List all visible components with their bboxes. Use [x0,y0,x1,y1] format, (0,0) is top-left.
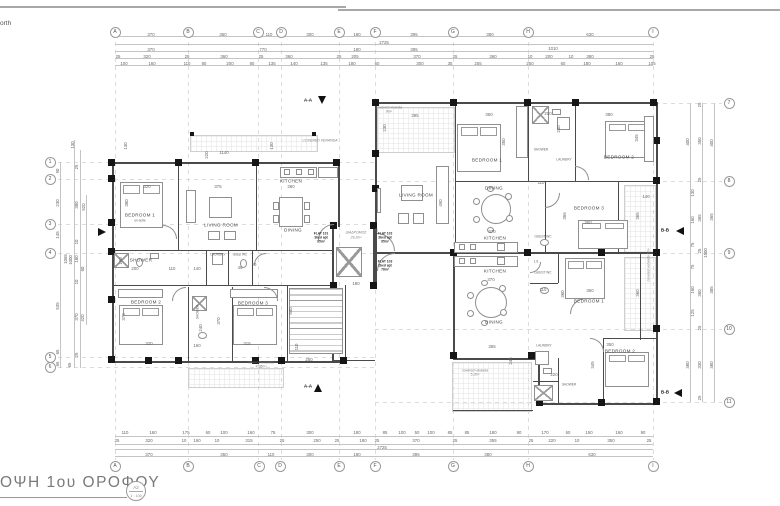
round-furniture [473,216,480,223]
dimension-label: 250 [313,439,320,443]
column [653,137,660,144]
wall [112,250,334,251]
dimension-label: 1010 [548,47,558,51]
grid-bubble: D [275,461,286,472]
wall [453,358,535,360]
dimension-label: 25 [453,439,458,443]
round-furniture [540,239,549,246]
wall [528,102,529,181]
furniture [497,257,505,265]
dimension-label: 250 [305,358,312,362]
dimension-label: 250 [526,62,533,66]
dimension-label: 350 [607,439,614,443]
dimension-label: 200 [544,112,551,116]
grid-bubble: G [448,461,459,472]
dimension-label: 355 [489,439,496,443]
dimension-label: 160 [149,431,156,435]
dimension-label: 360 [698,289,702,296]
furniture [470,244,476,250]
room-label: KITCHEN [280,180,302,185]
bed [605,352,649,387]
dimension-label: 630 [586,33,593,37]
dimension-label: 25 [698,178,702,183]
dimension-label: 140 [642,195,649,199]
sheet-size-label: A2 [127,485,145,490]
dimension-label: 85 [448,431,453,435]
dimension-label: 350 [698,137,702,144]
furniture [318,167,338,178]
dimension-label: 25 [75,165,79,170]
veranda-label: ΔΙΑΔΡΟΜΟΣ [346,231,367,235]
grid-bubble: I [648,27,659,38]
dimension-label: 355 [488,345,495,349]
veranda-label: 4.95m² [256,365,267,369]
dimension-label: 25 [650,55,655,59]
dimension-label: 20 [252,263,257,267]
dimension-label: LAUNDRY [210,253,225,256]
grid-line-vertical [188,42,189,460]
dimension-label: 25 [185,55,190,59]
door-swing [545,193,560,208]
column [450,352,457,359]
column [598,249,605,256]
dimension-label: 400 [710,139,714,146]
furniture [279,197,303,227]
dimension-label: 150 [585,431,592,435]
dimension-label: 370 [122,313,126,320]
column [370,282,377,289]
furniture [304,202,310,210]
dimension-label: 200 [226,62,233,66]
section-arrow [676,227,684,235]
dimension-label: 160 [691,286,695,293]
dimension-label: 300 [306,431,313,435]
dimension-label: SHOWER [534,148,548,151]
furniture [304,215,310,223]
dimension-label: 420 [81,314,85,321]
dimension-label: 25 [453,55,458,59]
dimension-label: 2725 [379,41,389,45]
room-label: SHOWER [130,259,152,264]
dimension-label: 320 [145,439,152,443]
dimension-label: 220 [205,151,209,158]
dimension-label: 360 [287,185,294,189]
column [278,357,285,364]
grid-bubble: 8 [724,176,735,187]
dimension-label: 240 [557,125,561,132]
dimension-label: 345 [591,361,595,368]
dimension-label: 25 [375,439,380,443]
dimension-label: 395 [412,453,419,457]
round-furniture [467,310,474,317]
veranda-label: covered veranda 5m² [647,248,651,281]
dimension-label: 140 [193,267,200,271]
dimension-label: 35 [448,62,453,66]
furniture [186,190,196,223]
dimension-label: 130 [691,189,695,196]
section-label: B-B [661,391,669,396]
column [528,352,535,359]
grid-bubble: 1 [45,157,56,168]
wall [455,102,456,253]
dimension-label: 10 [182,439,187,443]
dimension-label: 25 [698,396,702,401]
column [572,99,579,106]
dimension-label: 160 [193,439,200,443]
dimension-label: 110 [295,344,299,351]
grid-bubble: 9 [724,248,735,259]
door-swing [172,287,186,301]
furniture [552,109,561,115]
dimension-label: 180 [353,48,360,52]
dimension-label: 110 [122,431,129,435]
dimension-label: 370 [487,278,494,282]
section-arrow [674,389,682,397]
dimension-label: 60 [206,431,211,435]
wall [533,381,559,382]
room-label: DINING [284,229,302,234]
dimension-label: 220 [548,439,555,443]
dimension-label: 25 [280,439,285,443]
furniture [377,188,381,213]
column [598,399,605,406]
grid-line-vertical [281,42,282,460]
dimension-label: 60 [561,62,566,66]
dimension-label: 100 [427,431,434,435]
column [108,175,115,182]
dimension-label: 230 [383,124,387,131]
veranda-label: 5.2m² [471,373,480,377]
round-furniture [473,198,480,205]
dimension-label: 25 [529,439,534,443]
wall [252,250,253,285]
bed [119,305,163,345]
dimension-label: 65 [56,350,60,355]
furniture [535,351,549,365]
wall [603,338,656,339]
dimension-label: 25 [647,439,652,443]
dimension-label: 160 [615,431,622,435]
column [252,159,259,166]
dimension-label: 380 [486,33,493,37]
dimension-label: 110 [268,453,275,457]
dimension-label: 360 [485,113,492,117]
dimension-label: 370 [217,317,221,324]
grid-line-vertical [115,42,116,460]
dimension-label: 90 [517,431,522,435]
door-swing [163,225,177,239]
section-arrow [314,384,322,392]
grid-bubble: C [253,27,264,38]
title-underline [0,497,127,498]
dimension-label: 365 [710,213,714,220]
bed [565,258,605,299]
dimension-label: 490 [439,199,443,206]
dimension-label: 320 [143,185,150,189]
room-label: KITCHEN [484,270,506,275]
dimension-label: 380 [605,113,612,117]
dimension-label: 370 [413,55,420,59]
grid-bubble: 3 [45,219,56,230]
furniture [209,197,232,218]
dimension-label: 60 [375,62,380,66]
section-arrow [98,228,106,236]
round-furniture [500,309,507,316]
dimension-label: 180 [489,431,496,435]
dimension-label: 60 [81,267,85,272]
wall [228,250,229,285]
dimension-line [115,456,653,457]
furniture [224,231,236,240]
dimension-label: 25 [698,249,702,254]
dimension-label: 580 [289,307,293,314]
dimension-label: 205 [351,55,358,59]
dimension-label: 10 [569,55,574,59]
veranda-label: 29.2m² [351,236,362,240]
grid-bubble: E [334,461,345,472]
column [108,356,115,363]
column [524,249,531,256]
room-label: LIVING ROOM [204,224,238,229]
column [333,159,340,166]
grid-bubble: I [648,461,659,472]
dimension-label: 180 [583,62,590,66]
veranda-label: COVERED VERANDA [302,139,337,143]
furniture [497,243,505,251]
dimension-label: 360 [220,55,227,59]
dimension-label: 245 [509,357,513,364]
section-label: A-A [304,99,312,104]
grid-bubble: B [183,461,194,472]
bed [233,305,277,345]
dimension-label: 25 [698,326,702,331]
room-label: BEDROOM 3 [574,207,604,212]
bed [457,124,501,172]
scale-ratio-label: 1 : 100 [127,494,145,498]
furniture [644,116,654,162]
dimension-label: 375 [214,185,221,189]
wall [345,285,346,361]
dimension-label: 25 [116,55,121,59]
grid-bubble: 6 [45,362,56,373]
column [650,99,657,106]
dimension-label: 360 [219,33,226,37]
grid-bubble: A [110,27,121,38]
dimension-label: GUEST WC [534,271,551,274]
dimension-label: 50 [415,431,420,435]
grid-bubble: C [254,461,265,472]
column [145,357,152,364]
round-furniture [506,215,513,222]
dimension-label: 200 [131,267,138,271]
column [312,132,316,136]
grid-line-horizontal [58,179,375,180]
section-arrow [318,96,326,104]
dimension-label: 2725 [377,446,387,450]
door-swing [590,338,604,352]
column [653,398,660,405]
grid-line-vertical [258,42,259,460]
flat-label: 95m² [317,240,325,243]
dimension-label: 125 [691,309,695,316]
wall [375,102,658,104]
dimension-label: 180 [353,453,360,457]
dimension-label: 370 [145,453,152,457]
furniture [413,213,424,224]
dimension-label: 360 [220,453,227,457]
dimension-label: 100 [120,62,127,66]
dimension-label: 365 [563,212,567,219]
dimension-line [74,140,75,368]
dimension-label: 370 [412,439,419,443]
round-furniture [198,332,207,339]
grid-bubble: F [370,27,381,38]
grid-bubble: 7 [724,98,735,109]
wall [287,285,288,361]
furniture [284,169,290,175]
grid-line-horizontal [375,329,722,330]
dimension-label: 345 [635,134,639,141]
dimension-line [115,36,653,37]
dimension-label: 200 [545,55,552,59]
grid-bubble: H [523,461,534,472]
dimension-line [86,195,87,325]
dimension-label: 75 [691,243,695,248]
furniture [516,106,528,158]
dimension-label: 85 [383,431,388,435]
dimension-label: 85 [465,431,470,435]
dimension-label: 520 [82,203,86,210]
dimension-label: 350 [606,343,613,347]
dimension-label: 75 [691,265,695,270]
dimension-label: 255 [474,62,481,66]
dimension-label: 380 [586,55,593,59]
column [108,296,115,303]
flat-label: 78m² [381,268,389,271]
wall [453,253,455,360]
wall [332,360,375,361]
dimension-label: 110 [540,288,547,292]
floor-plan-sheet: orth 37036011030018039538063027253707701… [0,0,780,506]
dimension-label: 100 [220,431,227,435]
column [450,99,457,106]
dimension-line [60,162,61,368]
dimension-label: 370 [488,230,495,234]
dimension-label: 180 [359,439,366,443]
grid-bubble: 4 [45,248,56,259]
dimension-label: 25 [115,439,120,443]
dimension-label: 25 [75,353,79,358]
furniture [308,169,314,175]
dimension-label: 100 [398,431,405,435]
room-label: BEDROOM 1 [574,300,604,305]
dimension-label: 140 [290,62,297,66]
dimension-label: 110 [184,62,191,66]
dimension-label: 130 [270,142,274,149]
dimension-label: 10 [75,240,79,245]
dimension-line [115,51,653,52]
grid-bubble: E [334,27,345,38]
round-furniture [467,292,474,299]
furniture [296,169,302,175]
furniture [273,215,279,223]
dimension-label: 1140 [219,151,228,155]
grid-bubble: 11 [724,397,735,408]
wall [558,253,559,283]
dimension-label: 380 [686,361,690,368]
dimension-label: 135 [268,62,275,66]
door-swing [575,166,589,180]
room-label: LIVING ROOM [399,194,433,199]
column [175,357,182,364]
flat-label: 95m² [381,240,389,243]
scale-bubble: A2 1 : 100 [126,481,146,501]
furniture [436,166,449,224]
dimension-label: 395 [410,48,417,52]
room-label: BEDROOM 1 [472,159,502,164]
dimension-label: 320 [143,55,150,59]
dimension-label: 535 [56,302,60,309]
dimension-label: 10 [528,55,533,59]
dimension-label: 110 [266,33,273,37]
section-label: A-A [304,385,312,390]
dimension-label: 105 [648,62,655,66]
dimension-label: 1500 [704,248,708,258]
wall [530,283,558,284]
dimension-label: GUEST WC [534,235,551,238]
dimension-label: 160 [247,431,254,435]
dimension-label: 180 [348,62,355,66]
dimension-label: 380 [484,453,491,457]
dimension-label: 160 [148,62,155,66]
wall [112,162,340,164]
column [108,159,115,166]
dimension-label: 360 [636,289,640,296]
dimension-label: 220 [550,373,557,377]
wall [338,162,340,227]
grid-bubble: G [448,27,459,38]
dimension-line [690,103,691,402]
grid-bubble: 2 [45,174,56,185]
dimension-label: 65 [68,363,72,368]
column [524,99,531,106]
dimension-label: 330 [698,361,702,368]
dimension-label: 380 [710,361,714,368]
dimension-label: 90 [56,169,60,174]
grid-bubble: 10 [724,324,735,335]
dimension-label: 80 [250,62,255,66]
room-label: KITCHEN [484,237,506,242]
dimension-label: 170 [541,431,548,435]
column [372,150,379,157]
dimension-label: 180 [352,282,359,286]
dimension-label: 385 [710,286,714,293]
dimension-label: 365 [698,214,702,221]
dimension-label: 60 [566,431,571,435]
dimension-label: 10 [215,439,220,443]
wall [178,162,179,250]
furniture [470,258,476,264]
round-furniture [499,285,506,292]
dimension-label: SHOWER [562,383,576,386]
room-label: DINING [485,187,503,192]
column [653,177,660,184]
wall [112,285,334,286]
furniture [208,231,220,240]
furniture [398,213,409,224]
covered-veranda-hatch [188,368,284,388]
furniture [459,244,465,250]
